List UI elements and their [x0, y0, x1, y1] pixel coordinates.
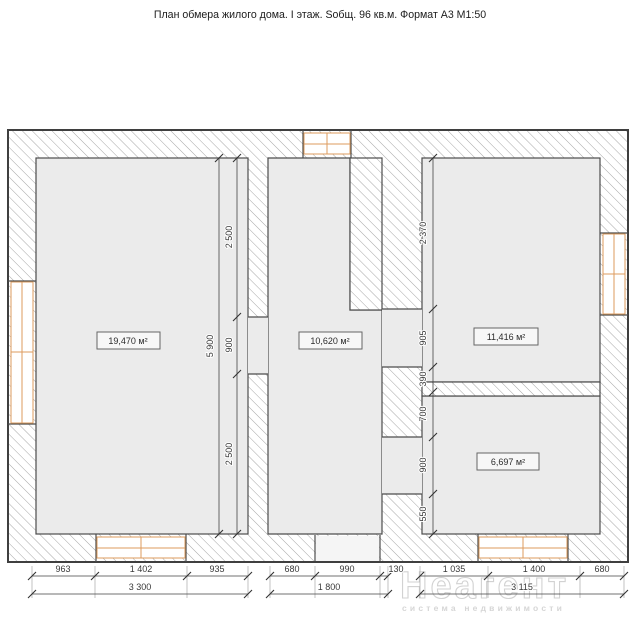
- divider-wall-right-rooms: [422, 382, 600, 396]
- dim-label: 680: [594, 564, 609, 574]
- dim-label: 2 370: [418, 222, 428, 245]
- dim-label: 900: [224, 337, 234, 352]
- dim-label: 1 035: [443, 564, 466, 574]
- dim-label: 2 500: [224, 443, 234, 466]
- dim-label: 680: [284, 564, 299, 574]
- watermark-tagline: система недвижимости: [402, 603, 565, 613]
- dim-label: 900: [418, 457, 428, 472]
- dim-label-total: 3 115: [511, 582, 533, 592]
- dim-label: 1 402: [130, 564, 153, 574]
- room-left-area-label: 19,470 м²: [108, 336, 147, 346]
- dim-label: 550: [418, 506, 428, 521]
- stove-block: [350, 158, 382, 310]
- floor-plan-document: План обмера жилого дома. I этаж. Sобщ. 9…: [0, 0, 636, 636]
- door-middle-to-right-top: [382, 309, 422, 367]
- room-middle-area-label: 10,620 м²: [310, 336, 349, 346]
- room-right-bottom-area-label: 6,697 м²: [491, 457, 525, 467]
- floor-plan-drawing: План обмера жилого дома. I этаж. Sобщ. 9…: [0, 0, 636, 636]
- dim-label-total: 3 300: [129, 582, 152, 592]
- dim-label: 935: [209, 564, 224, 574]
- dim-label: 130: [388, 564, 403, 574]
- entrance-doorway: [316, 536, 379, 561]
- drawing-title: План обмера жилого дома. I этаж. Sобщ. 9…: [154, 9, 486, 21]
- room-right-top-area-label: 11,416 м²: [487, 332, 526, 342]
- dim-label: 390: [418, 371, 428, 386]
- dim-label: 990: [339, 564, 354, 574]
- door-left-to-middle: [248, 317, 268, 374]
- dim-label: 963: [55, 564, 70, 574]
- dim-label: 700: [418, 406, 428, 421]
- door-middle-to-right-bottom: [382, 437, 422, 494]
- dim-label: 1 400: [523, 564, 546, 574]
- dim-label: 2 500: [224, 226, 234, 249]
- dim-label-total: 5 900: [205, 335, 215, 358]
- room-right-top-floor: [422, 158, 600, 382]
- dim-label: 905: [418, 330, 428, 345]
- dim-label-total: 1 800: [318, 582, 341, 592]
